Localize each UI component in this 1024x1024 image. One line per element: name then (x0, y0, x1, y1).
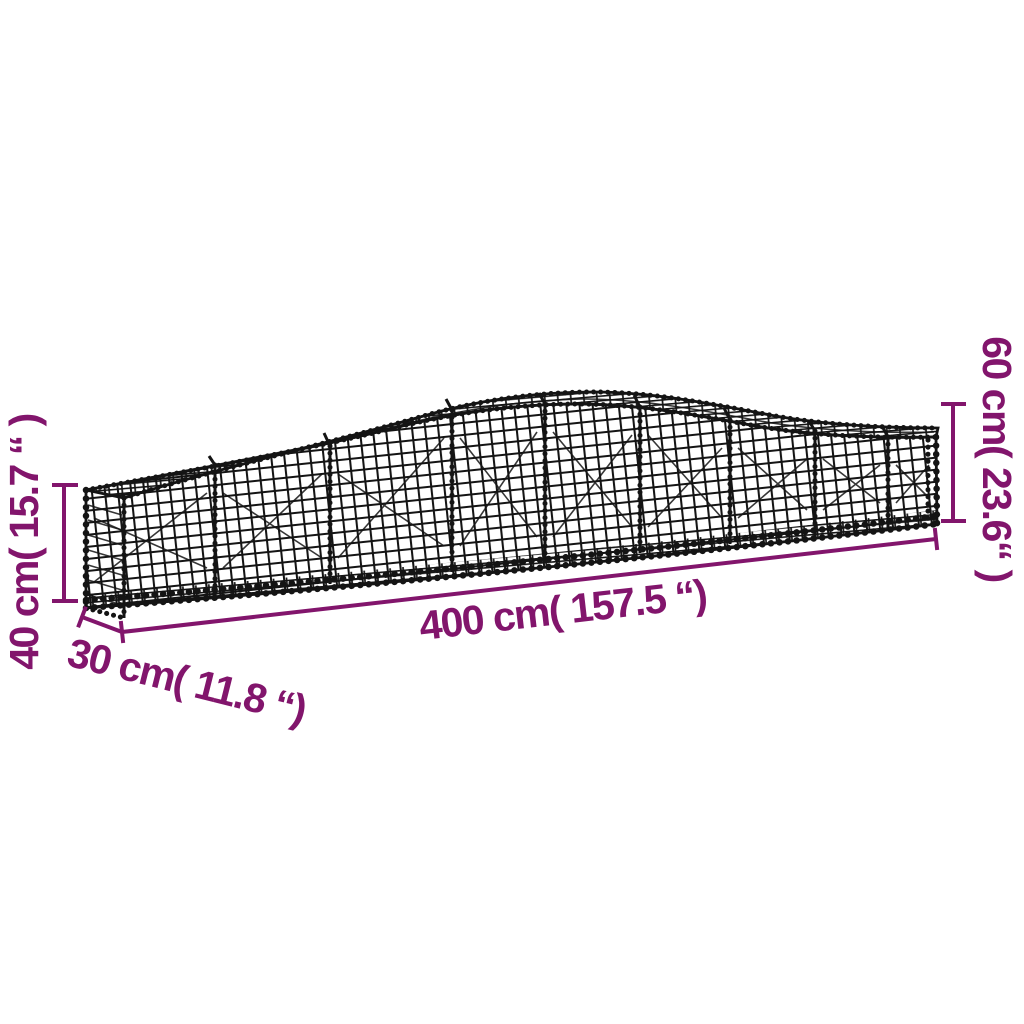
diagram-canvas: 40 cm( 15.7 “ ) 60 cm( 23.6“ ) 400 cm( 1… (0, 0, 1024, 1024)
gabion-basket-drawing (86, 392, 938, 618)
height-left-dimension-line (52, 485, 78, 601)
product-dimension-diagram: 40 cm( 15.7 “ ) 60 cm( 23.6“ ) 400 cm( 1… (0, 0, 1024, 1024)
height-right-dimension: 60 cm( 23.6“ ) (941, 336, 1020, 582)
depth-dimension-label: 30 cm( 11.8 “) (63, 629, 310, 733)
height-left-dimension-label: 40 cm( 15.7 “ ) (1, 414, 47, 670)
height-right-dimension-line (941, 404, 966, 521)
height-right-dimension-label: 60 cm( 23.6“ ) (974, 336, 1020, 582)
height-left-dimension: 40 cm( 15.7 “ ) (1, 414, 78, 670)
